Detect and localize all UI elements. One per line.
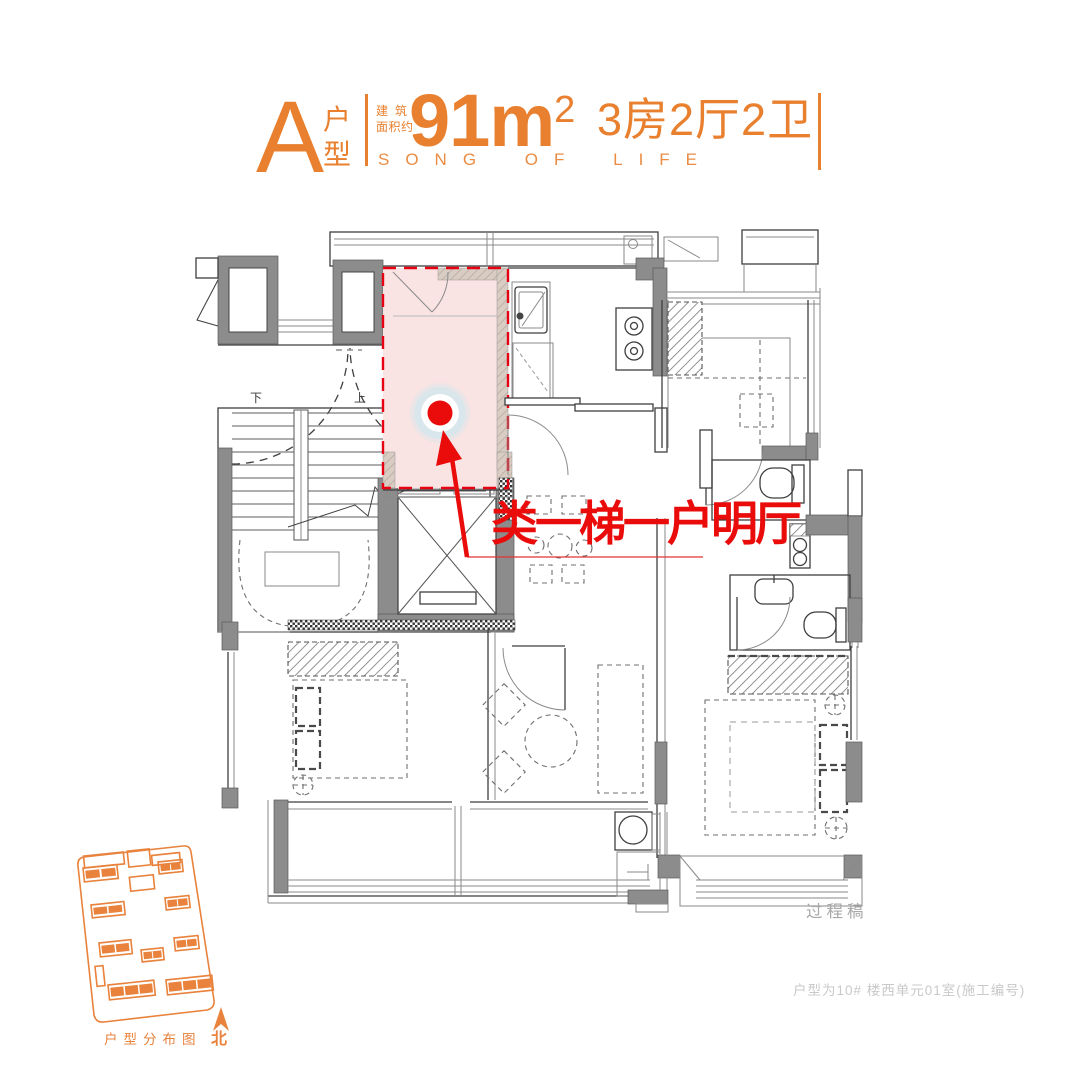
master-bathroom (730, 575, 858, 650)
bay-window-bottom (658, 855, 862, 906)
nightstand (820, 725, 847, 765)
site-map-caption: 户型分布图 (104, 1033, 202, 1047)
site-buildings (83, 859, 213, 999)
stairs-down-label: 下 (250, 392, 262, 404)
bed (705, 700, 815, 835)
north-arrow (213, 1007, 229, 1031)
armchair (483, 751, 525, 793)
wardrobe (728, 656, 848, 694)
desk (740, 394, 773, 427)
site-map (78, 846, 229, 1031)
round-table (525, 715, 577, 767)
nightstand (820, 770, 847, 812)
living-room (470, 665, 648, 809)
balcony (268, 800, 668, 912)
bay-window-top-right (742, 230, 818, 292)
nightstand (296, 688, 320, 726)
master-bedroom (655, 518, 862, 858)
unit-note: 户型为10# 楼西单元01室(施工编号) (793, 984, 1025, 998)
kitchen (505, 258, 667, 475)
location-marker (410, 383, 470, 443)
bedroom-2 (218, 620, 565, 809)
wardrobe (288, 642, 398, 676)
draft-watermark: 过程稿 (806, 904, 868, 921)
toilet (804, 612, 836, 638)
wardrobe (668, 302, 702, 375)
annotation-text: 类一梯一户明厅 (491, 500, 799, 547)
bedroom-top-right (662, 288, 820, 505)
north-label: 北 (211, 1032, 227, 1048)
bed (293, 680, 407, 778)
toilet (760, 468, 794, 498)
sofa (598, 665, 643, 793)
stairs-up-label: 上 (354, 392, 366, 404)
nightstand (296, 731, 320, 769)
floor-plan-page: A 户 型 建筑 面积约 91m2 3房2厅2卫 SONG OF LIFE (0, 0, 1079, 1090)
